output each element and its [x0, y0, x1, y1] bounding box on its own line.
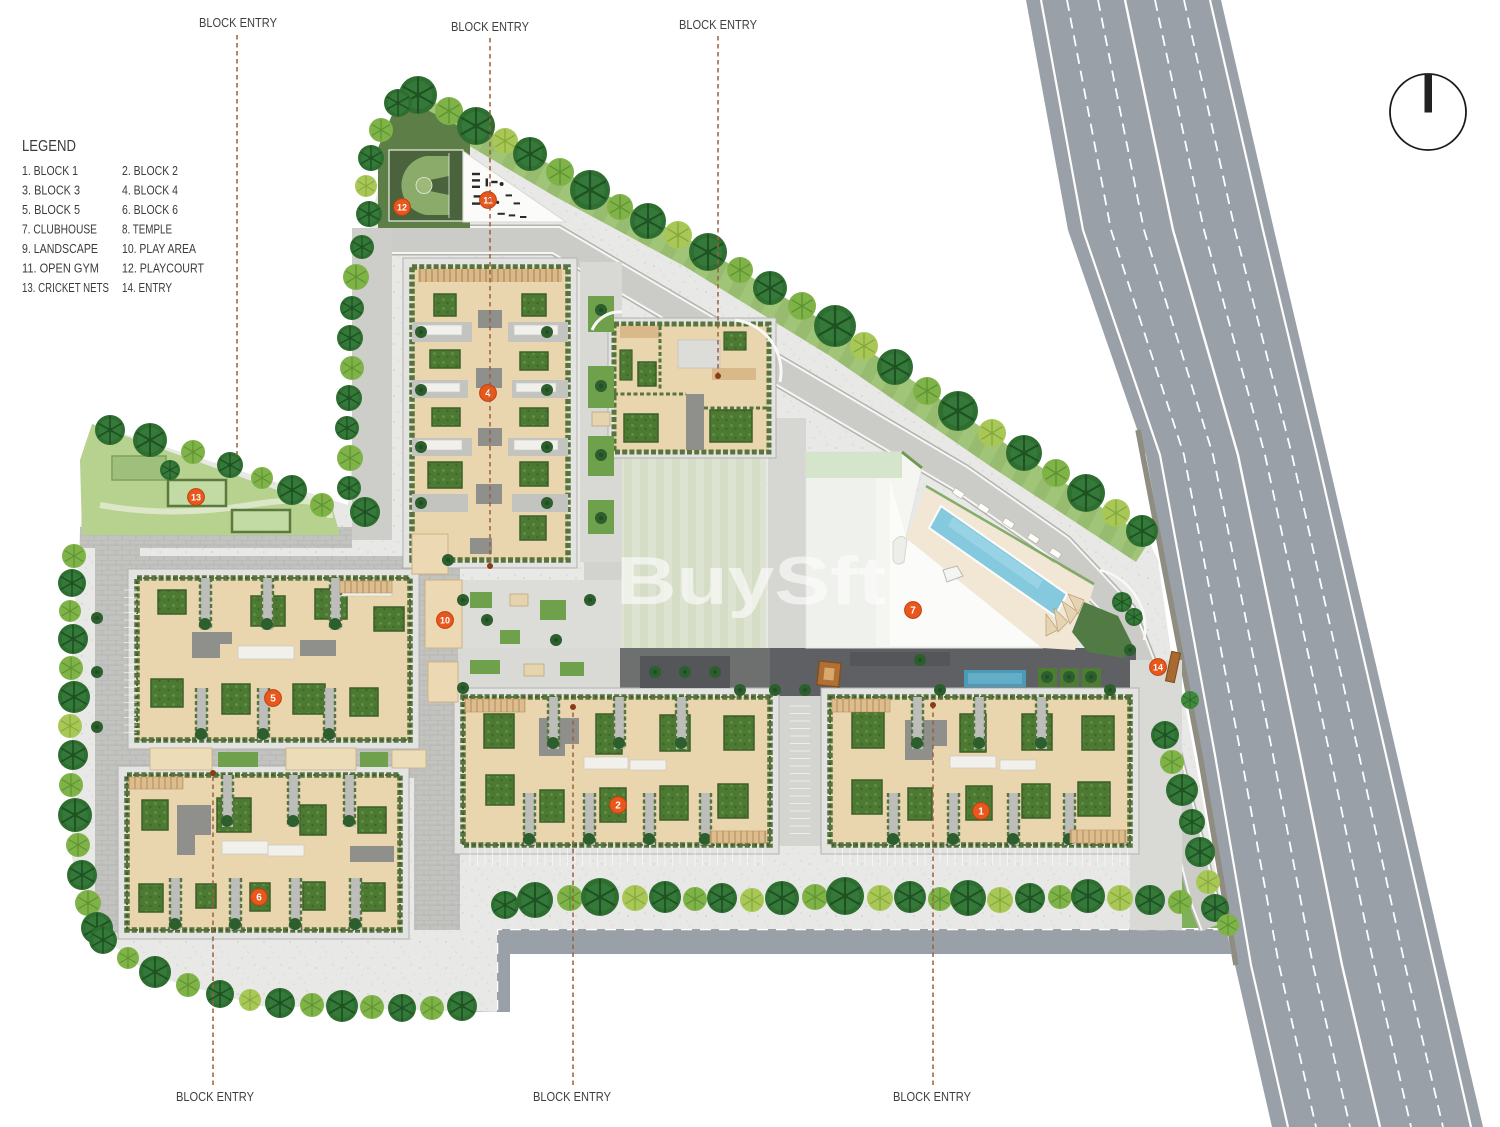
svg-text:1: 1: [978, 806, 984, 817]
svg-text:10: 10: [440, 615, 450, 625]
svg-text:14: 14: [1153, 662, 1163, 672]
svg-text:7. CLUBHOUSE: 7. CLUBHOUSE: [22, 222, 97, 237]
svg-text:9. LANDSCAPE: 9. LANDSCAPE: [22, 241, 98, 256]
svg-text:5. BLOCK 5: 5. BLOCK 5: [22, 202, 80, 217]
svg-text:13: 13: [191, 492, 201, 502]
svg-text:8. TEMPLE: 8. TEMPLE: [122, 222, 172, 237]
svg-text:11: 11: [483, 195, 493, 205]
svg-text:BLOCK ENTRY: BLOCK ENTRY: [893, 1089, 971, 1104]
svg-text:11. OPEN GYM: 11. OPEN GYM: [22, 261, 99, 276]
svg-text:BuySft: BuySft: [616, 543, 886, 619]
svg-text:BLOCK ENTRY: BLOCK ENTRY: [451, 19, 529, 34]
svg-text:BLOCK ENTRY: BLOCK ENTRY: [176, 1089, 254, 1104]
svg-text:BLOCK ENTRY: BLOCK ENTRY: [679, 17, 757, 32]
svg-text:12. PLAYCOURT: 12. PLAYCOURT: [122, 261, 204, 276]
svg-text:4. BLOCK 4: 4. BLOCK 4: [122, 183, 178, 198]
svg-text:3. BLOCK 3: 3. BLOCK 3: [22, 183, 80, 198]
svg-text:14. ENTRY: 14. ENTRY: [122, 280, 172, 295]
svg-text:BLOCK ENTRY: BLOCK ENTRY: [199, 15, 277, 30]
svg-text:1. BLOCK 1: 1. BLOCK 1: [22, 163, 78, 178]
svg-text:5: 5: [270, 693, 276, 704]
svg-text:7: 7: [910, 605, 916, 616]
svg-text:12: 12: [397, 202, 407, 212]
svg-text:13. CRICKET NETS: 13. CRICKET NETS: [22, 280, 109, 295]
svg-text:6: 6: [256, 892, 262, 903]
svg-text:BLOCK ENTRY: BLOCK ENTRY: [533, 1089, 611, 1104]
svg-text:6. BLOCK 6: 6. BLOCK 6: [122, 202, 178, 217]
svg-text:2. BLOCK 2: 2. BLOCK 2: [122, 163, 178, 178]
svg-text:LEGEND: LEGEND: [22, 138, 76, 155]
svg-text:10. PLAY AREA: 10. PLAY AREA: [122, 241, 196, 256]
svg-text:2: 2: [615, 800, 621, 811]
